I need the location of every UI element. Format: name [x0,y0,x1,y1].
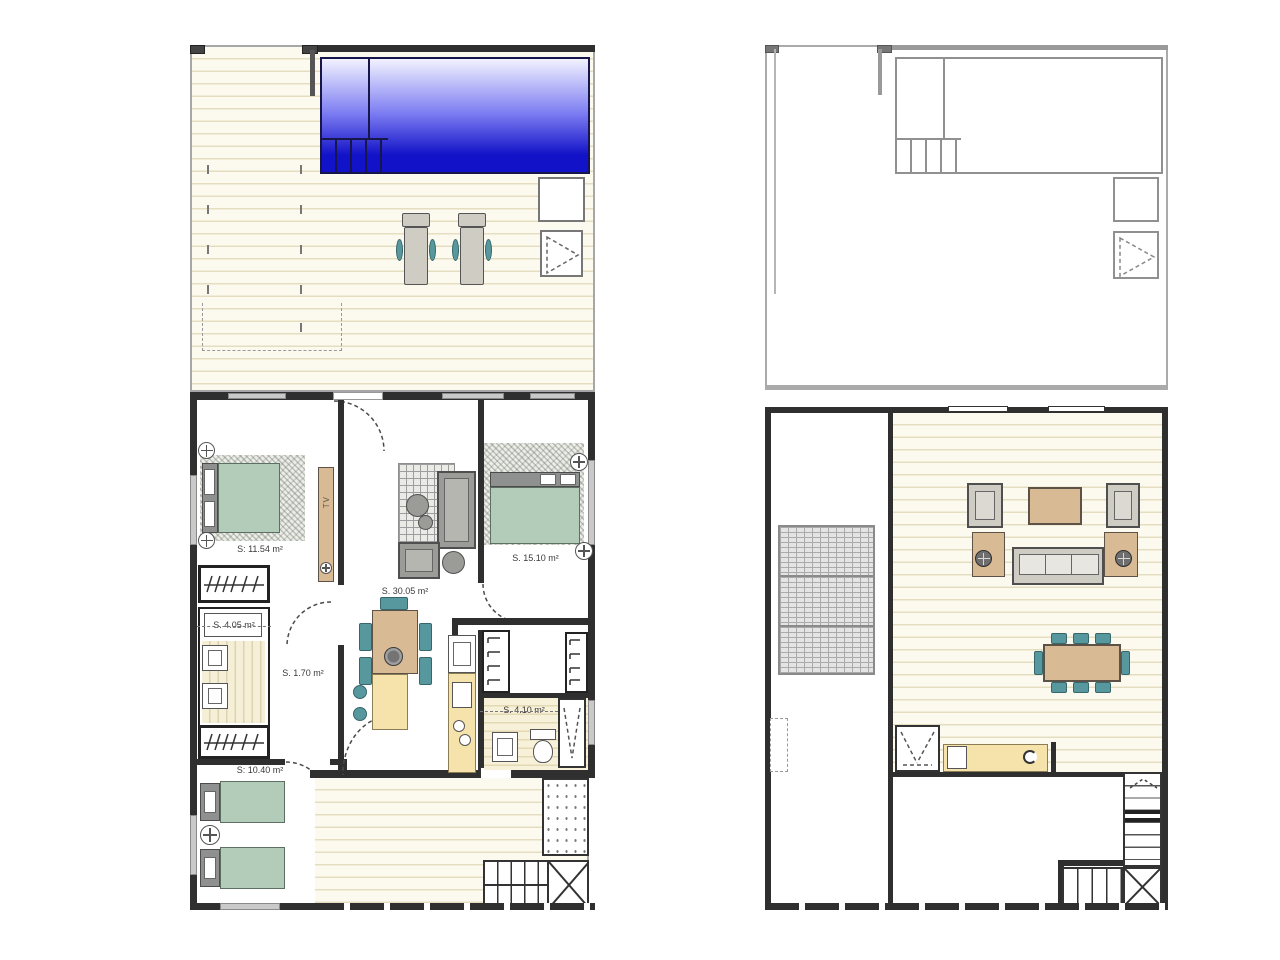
bathroom-sink [492,732,518,762]
lounger-headrest [458,213,486,227]
wall-cap [765,45,779,53]
roof-bottom-wall [765,903,1168,910]
pillow [540,474,556,485]
lounger-body [460,227,484,285]
hanger-icon [201,568,267,600]
window [228,393,286,399]
roof-stairs-landing [1123,867,1162,907]
stair-mid-line [485,884,547,886]
stool [353,707,367,721]
plant-icon [198,442,215,459]
centerpiece [384,647,403,666]
faucet-icon [1023,750,1037,764]
window [588,460,595,545]
shower-icon [560,700,584,766]
louver-panel [542,778,589,856]
dining-chair [359,657,372,685]
deck-tick [300,165,302,174]
x-mark-icon [549,862,589,908]
roof-shower-tray [895,725,940,772]
pillow [204,501,215,527]
arrow-icon [1115,233,1161,281]
kitchen-end-wall [1051,742,1056,773]
terrace-planter [1113,177,1159,222]
kitchen-island [372,674,408,730]
stair-thick-tread [1125,810,1160,814]
roof-upper-bottom-wall [765,385,1168,390]
terrace-planter [538,177,585,222]
plant-icon [1115,550,1132,567]
deck-tick [207,205,209,214]
twin-bed [200,847,285,889]
armchair [398,542,440,579]
plant-icon [570,453,588,471]
roof-sofa [1012,547,1104,585]
hook-icon [484,632,507,690]
bedroom2-bottom-wall [452,618,595,625]
roof-coffee-table [1028,487,1082,525]
bedroom1-bed [218,463,280,533]
living-area-label: S. 30.05 m² [350,586,460,597]
kitchen-cabinet [448,635,476,673]
toilet [530,729,556,765]
partition-wall [338,400,344,585]
hall-door-swing [286,601,332,647]
washer [202,645,228,671]
window-bracket [1048,406,1105,412]
pergola-grid [778,525,875,675]
arrow-icon [542,232,585,279]
solarium-deck [893,413,1162,772]
hanger-icon [201,728,267,756]
pool-outline [895,57,1163,174]
roof-dining-chair [1073,682,1089,693]
lounger-side-pad [396,239,403,261]
entry-door-gap [333,392,383,400]
deck-tick [300,245,302,254]
deck-tick [300,323,302,332]
roof-bottom-steps [1062,867,1123,907]
window [190,815,197,875]
hall-area-label: S. 1.70 m² [258,668,348,679]
pillow [204,791,216,813]
window [442,393,504,399]
stair-side-wall [1058,860,1123,866]
wardrobe [198,565,270,603]
roof-dining-chair [1051,633,1067,644]
lounger-headrest [402,213,430,227]
roof-dining-chair [1034,651,1043,675]
pool-steps [322,138,388,174]
pool-steps-outline [897,138,961,174]
bathroom1-area-label: S. 4.05 m² [205,620,263,631]
roof-divider-stub [878,49,882,95]
lounger-body [404,227,428,285]
tv-label: TV [322,496,331,508]
twin-mattress [220,847,285,889]
deck-tick [207,165,209,174]
deck-tick [300,205,302,214]
cooktop-icon [459,734,471,746]
roof-plan [765,45,1168,912]
lounger-side-pad [429,239,436,261]
roof-left-line [774,49,776,294]
twin-mattress [220,781,285,823]
bathroom2-area-label: S. 4.10 m² [488,705,560,716]
hook-icon [567,634,585,690]
plan-bottom-wall [310,903,595,910]
dining-chair [419,623,432,651]
toilet-bowl [533,740,553,763]
sun-lounger [396,213,436,287]
grid-separator [780,575,873,577]
terrace-divider-stub [310,50,315,96]
wall-cap [190,45,205,54]
roof-stairs [1123,772,1162,867]
outdoor-shower-box [1113,231,1159,279]
closet [482,630,510,693]
roof-armchair [967,483,1003,528]
lounger-side-pad [452,239,459,261]
roof-dining-chair [1051,682,1067,693]
deck-tick [207,285,209,294]
roof-lower-room-top-wall [893,772,1125,777]
bedroom3-area-label: S: 10.40 m² [205,765,315,776]
kitchen-counter [448,673,476,773]
roof-dining-table [1043,644,1121,682]
pool-lane-line [368,59,370,139]
bathroom1-label-box: S. 4.05 m² [204,613,262,637]
pouf [406,494,429,517]
twin-bed [200,781,285,823]
window [588,700,595,745]
plant-icon [320,562,332,574]
pouf [442,551,465,574]
solarium-right-wall [1162,407,1168,910]
pouf [418,515,433,530]
dining-chair [380,597,408,610]
kitchen-sink [452,682,472,708]
stair-arrow-icon [1127,776,1160,790]
roof-armchair [1106,483,1140,528]
roof-dining-chair [1121,651,1130,675]
floor-plan-sheet: S: 11.54 m² TV S. 30.05 m² S. 15.10 m² [0,0,1280,960]
sun-lounger [452,213,492,287]
window [220,903,280,910]
wardrobe [198,725,270,759]
roof-dining-chair [1095,633,1111,644]
roof-dining-chair [1095,682,1111,693]
bathroom1: S. 4.05 m² [198,607,270,727]
fan-icon [200,825,220,845]
shower-icon [897,727,938,770]
closet [565,632,588,693]
bedroom2-bed [490,487,580,544]
x-mark-icon [1125,869,1160,905]
dashed-duct [770,718,788,772]
dining-chair [419,657,432,685]
terrace-dashed-zone [202,303,342,351]
bedroom2-area-label: S. 15.10 m² [488,553,583,564]
stair-landing [547,862,587,908]
swimming-pool [320,57,590,174]
stool [353,685,367,699]
outdoor-shower-box [540,230,583,277]
lounger-side-pad [485,239,492,261]
ground-floor-plan: S: 11.54 m² TV S. 30.05 m² S. 15.10 m² [190,45,595,912]
window [530,393,575,399]
pillow [204,857,216,879]
cooktop-icon [453,720,465,732]
solarium-left-wall [765,407,771,910]
window-bracket [948,406,1008,412]
pillow [204,469,215,495]
bedroom2-door-swing [482,583,522,623]
roof-kitchen-sink [947,746,967,769]
sofa [437,471,476,549]
terrace-top-wall [302,45,595,52]
grid-separator [780,625,873,627]
toilet-tank [530,729,556,740]
plant-icon [975,550,992,567]
deck-tick [300,285,302,294]
dining-chair [359,623,372,651]
pillow [560,474,576,485]
window [190,475,197,545]
washer [202,683,228,709]
deck-tick [207,245,209,254]
bedroom1-area-label: S: 11.54 m² [210,544,310,555]
roof-dining-chair [1073,633,1089,644]
stair-thick-tread [1125,818,1160,822]
shower-tray [558,698,586,768]
roof-top-wall [877,45,1168,50]
pool-lane-line [943,59,945,139]
